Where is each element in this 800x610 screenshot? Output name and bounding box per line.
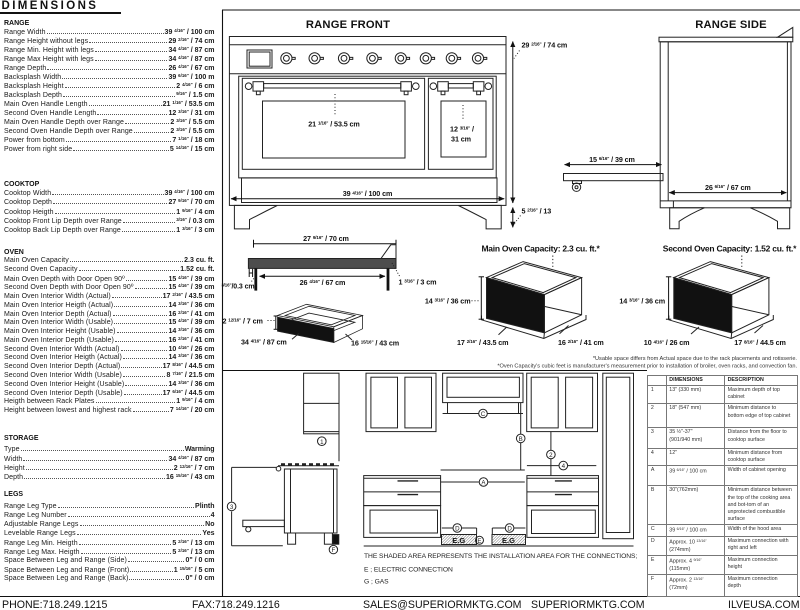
svg-text:F: F (332, 547, 336, 554)
svg-text:15 6/16" / 39 cm: 15 6/16" / 39 cm (589, 155, 635, 164)
svg-text:D: D (507, 526, 512, 533)
svg-text:16 2/16" / 41 cm: 16 2/16" / 41 cm (558, 338, 604, 347)
svg-text:34 4/16" / 87 cm: 34 4/16" / 87 cm (241, 337, 287, 346)
svg-text:14 3/16" / 36 cm: 14 3/16" / 36 cm (619, 296, 665, 305)
svg-text:14 3/16" / 36 cm: 14 3/16" / 36 cm (425, 296, 471, 305)
svg-text:2 12/16" / 7 cm: 2 12/16" / 7 cm (223, 316, 263, 325)
svg-text:E.G: E.G (502, 536, 515, 545)
svg-text:Main Oven Capacity: 2.3 cu. ft: Main Oven Capacity: 2.3 cu. ft.* (481, 244, 600, 254)
svg-text:*Oven Capacity's cubic feet is: *Oven Capacity's cubic feet is manufactu… (497, 364, 797, 370)
svg-text:*Usable space differs from Act: *Usable space differs from Actual space … (593, 356, 798, 362)
svg-text:12 3/16" /: 12 3/16" / (450, 125, 474, 134)
svg-text:26 6/16" / 67 cm: 26 6/16" / 67 cm (705, 183, 751, 192)
svg-text:C: C (481, 411, 486, 418)
svg-text:E ; ELECTRIC CONNECTION: E ; ELECTRIC CONNECTION (364, 567, 453, 574)
svg-text:4: 4 (562, 463, 566, 470)
svg-text:10 4/16" / 26 cm: 10 4/16" / 26 cm (644, 338, 690, 347)
svg-text:G ; GAS: G ; GAS (364, 579, 389, 586)
svg-text:2: 2 (549, 452, 553, 459)
svg-text:1: 1 (320, 439, 324, 446)
svg-text:E: E (477, 538, 481, 545)
svg-text:26 4/16" / 67 cm: 26 4/16" / 67 cm (300, 278, 346, 287)
svg-text:17 2/16" / 43.5 cm: 17 2/16" / 43.5 cm (457, 338, 508, 347)
svg-text:21 1/16" / 53.5 cm: 21 1/16" / 53.5 cm (308, 120, 359, 129)
svg-text:THE SHADED AREA REPRESENTS THE: THE SHADED AREA REPRESENTS THE INSTALLAT… (364, 553, 637, 560)
svg-text:D: D (455, 526, 460, 533)
svg-text:Second Oven Capacity: 1.52 cu.: Second Oven Capacity: 1.52 cu. ft.* (663, 244, 797, 254)
svg-text:3/16"/0.3 cm: 3/16"/0.3 cm (221, 283, 254, 291)
svg-text:RANGE FRONT: RANGE FRONT (306, 19, 390, 31)
svg-text:5 2/16" / 13: 5 2/16" / 13 (522, 207, 552, 216)
svg-text:1 3/16" / 3 cm: 1 3/16" / 3 cm (399, 277, 437, 286)
svg-text:31 cm: 31 cm (451, 135, 471, 144)
svg-text:27 9/16" / 70 cm: 27 9/16" / 70 cm (303, 234, 349, 243)
svg-text:3: 3 (230, 504, 234, 511)
svg-text:E.G: E.G (452, 536, 465, 545)
svg-text:RANGE SIDE: RANGE SIDE (695, 19, 767, 31)
svg-text:39 4/16" / 100 cm: 39 4/16" / 100 cm (343, 189, 393, 198)
svg-text:16 15/16" / 43 cm: 16 15/16" / 43 cm (351, 338, 399, 347)
svg-text:17 8/16" / 44.5 cm: 17 8/16" / 44.5 cm (734, 338, 785, 347)
svg-text:29 2/16" / 74 cm: 29 2/16" / 74 cm (522, 41, 568, 50)
svg-text:B: B (519, 436, 523, 443)
